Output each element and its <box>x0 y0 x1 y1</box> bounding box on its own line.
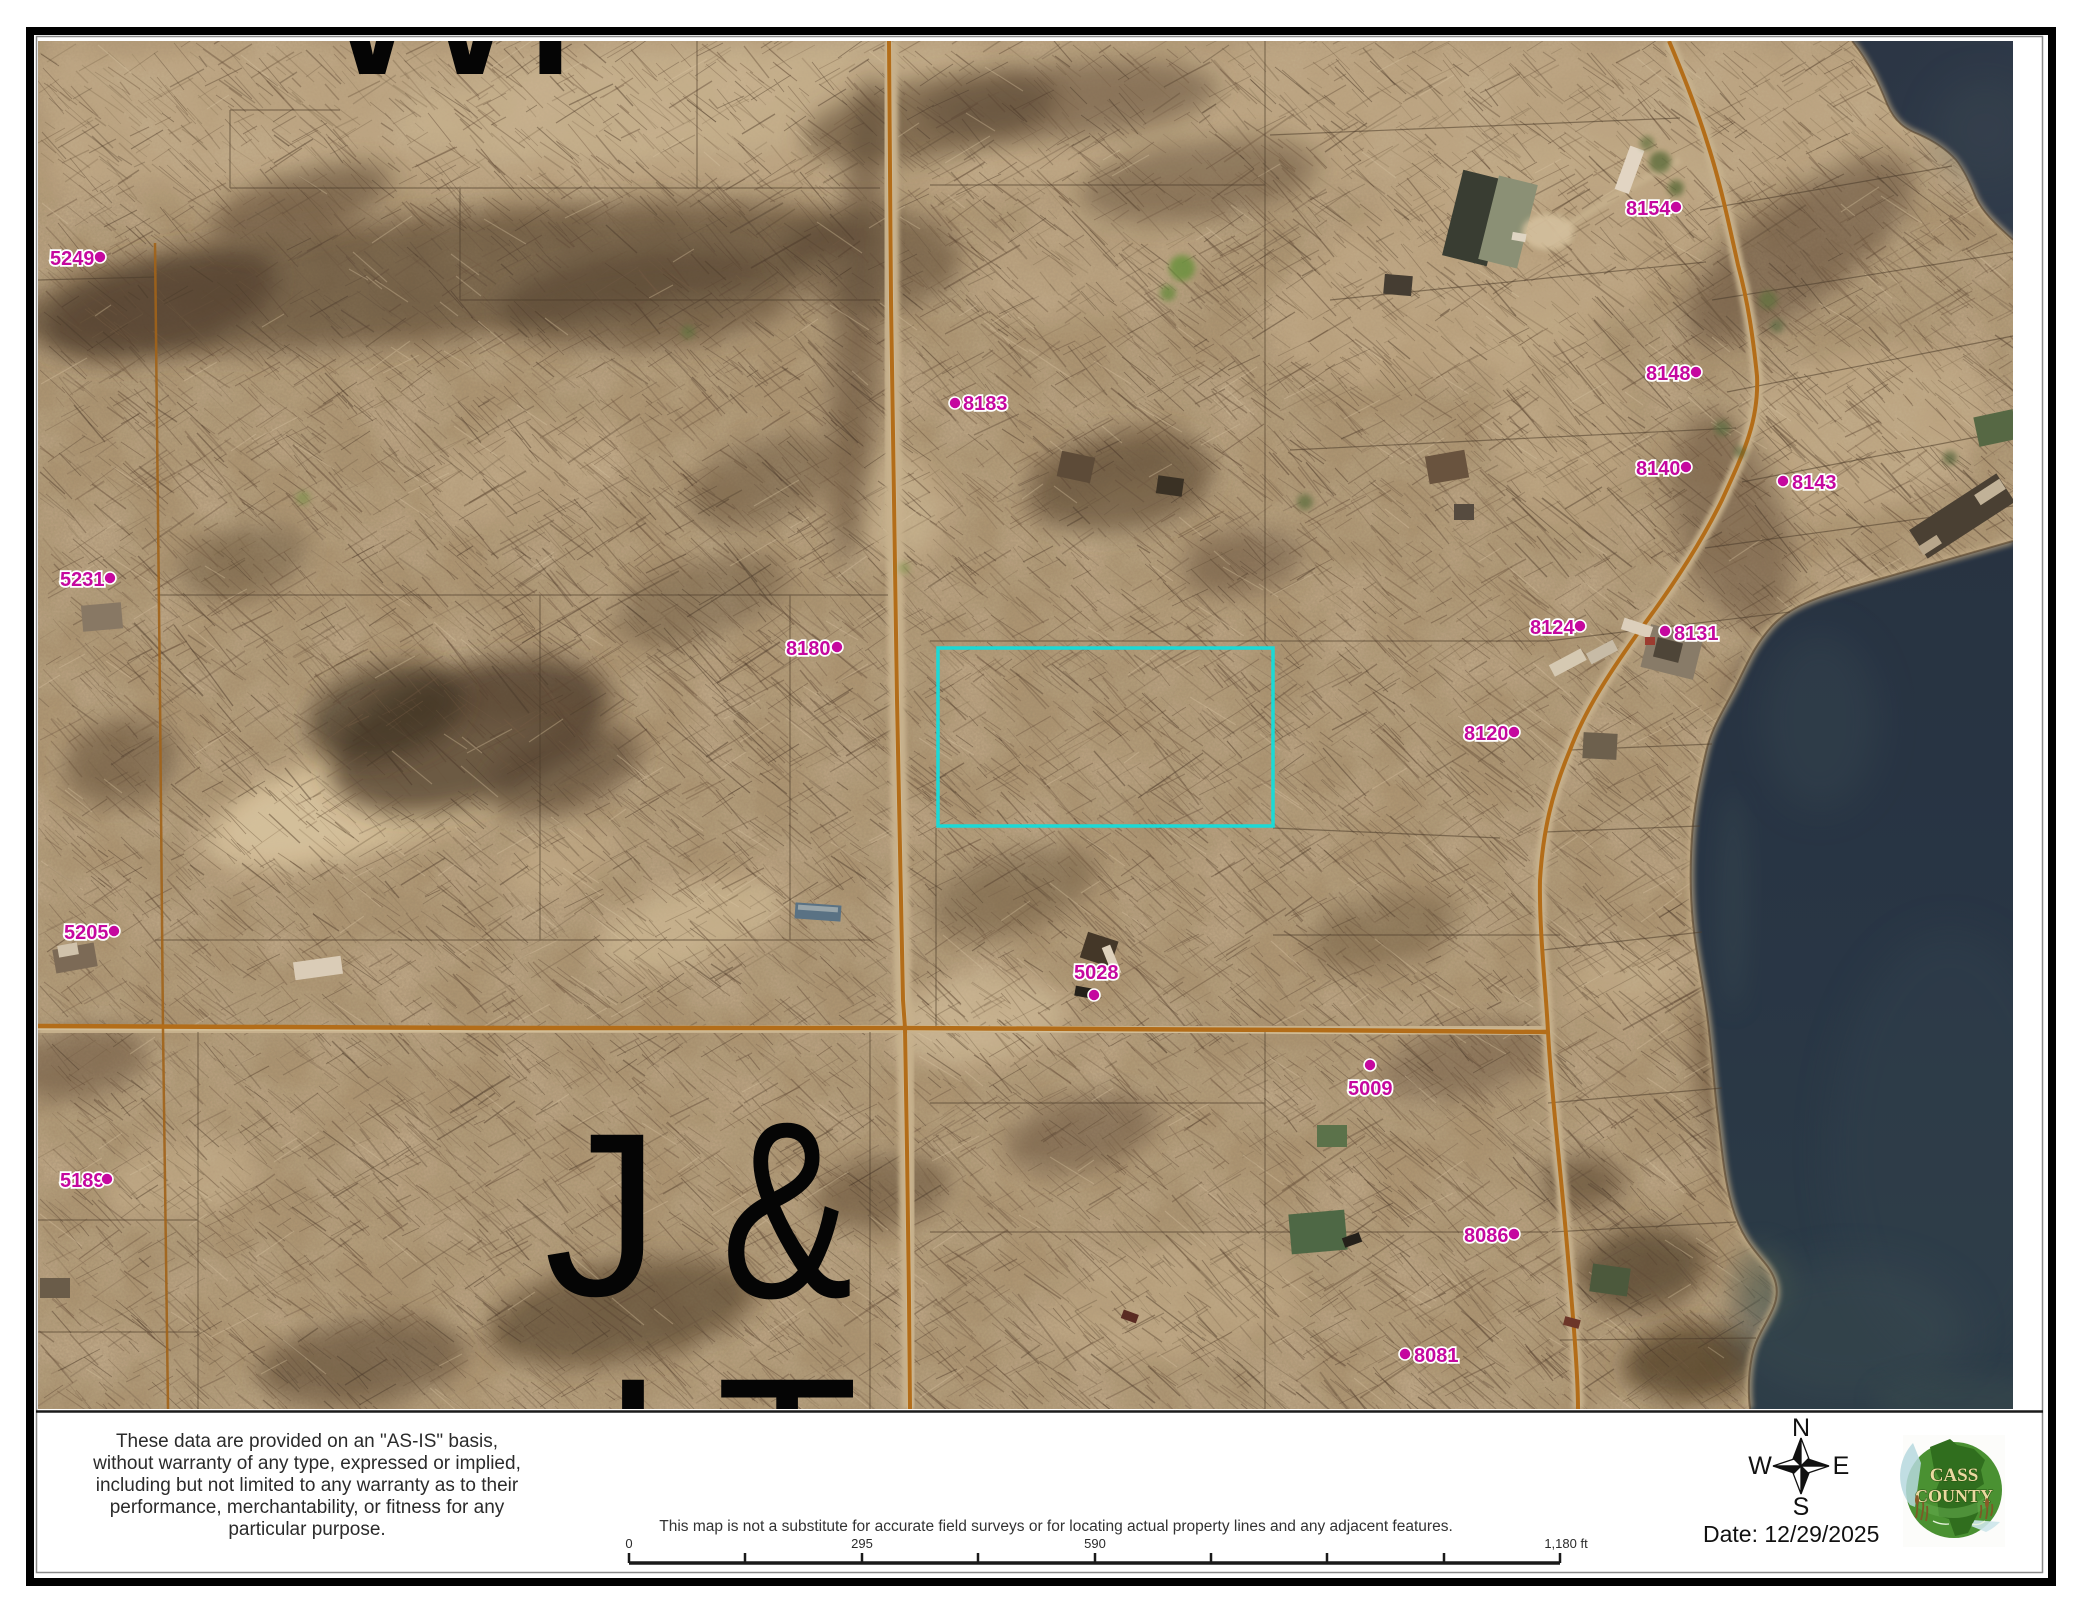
svg-text:295: 295 <box>851 1536 873 1551</box>
svg-text:8086: 8086 <box>1464 1225 1509 1247</box>
svg-text:without warranty of any type,: without warranty of any type, expressed … <box>92 1453 521 1474</box>
svg-text:5189: 5189 <box>60 1170 105 1192</box>
svg-text:1,180 ft: 1,180 ft <box>1544 1536 1588 1551</box>
svg-text:8143: 8143 <box>1792 472 1837 494</box>
svg-text:8081: 8081 <box>1414 1345 1459 1367</box>
svg-text:5028: 5028 <box>1074 962 1119 984</box>
svg-text:COUNTY: COUNTY <box>1915 1486 1993 1506</box>
svg-text:8124: 8124 <box>1530 617 1575 639</box>
svg-text:8183: 8183 <box>963 393 1008 415</box>
svg-text:E: E <box>1833 1452 1850 1480</box>
svg-text:5009: 5009 <box>1348 1078 1393 1100</box>
svg-text:performance, merchantability,: performance, merchantability, or fitness… <box>110 1497 505 1518</box>
svg-text:J: J <box>544 1085 661 1345</box>
svg-text:8180: 8180 <box>786 638 831 660</box>
svg-text:5231: 5231 <box>60 569 105 591</box>
svg-text:&: & <box>721 1069 852 1351</box>
svg-text:5205: 5205 <box>64 922 109 944</box>
svg-text:including but not limited to a: including but not limited to any warrant… <box>96 1475 519 1496</box>
svg-text:8154: 8154 <box>1626 198 1671 220</box>
svg-text:8140: 8140 <box>1636 458 1681 480</box>
svg-text:0: 0 <box>625 1536 632 1551</box>
svg-text:Date: 12/29/2025: Date: 12/29/2025 <box>1703 1521 1879 1547</box>
svg-text:590: 590 <box>1084 1536 1106 1551</box>
svg-text:CASS: CASS <box>1930 1465 1979 1486</box>
svg-text:N: N <box>1792 1414 1810 1442</box>
svg-text:S: S <box>1793 1493 1810 1521</box>
svg-text:5249: 5249 <box>50 248 95 270</box>
svg-text:8148: 8148 <box>1646 363 1691 385</box>
svg-text:W: W <box>1748 1452 1772 1480</box>
svg-text:particular purpose.: particular purpose. <box>228 1519 385 1540</box>
svg-text:These data are provided on an: These data are provided on an "AS-IS" ba… <box>116 1431 498 1452</box>
svg-text:8120: 8120 <box>1464 723 1509 745</box>
svg-text:8131: 8131 <box>1674 623 1719 645</box>
svg-text:This map is not a substitute f: This map is not a substitute for accurat… <box>659 1518 1453 1535</box>
